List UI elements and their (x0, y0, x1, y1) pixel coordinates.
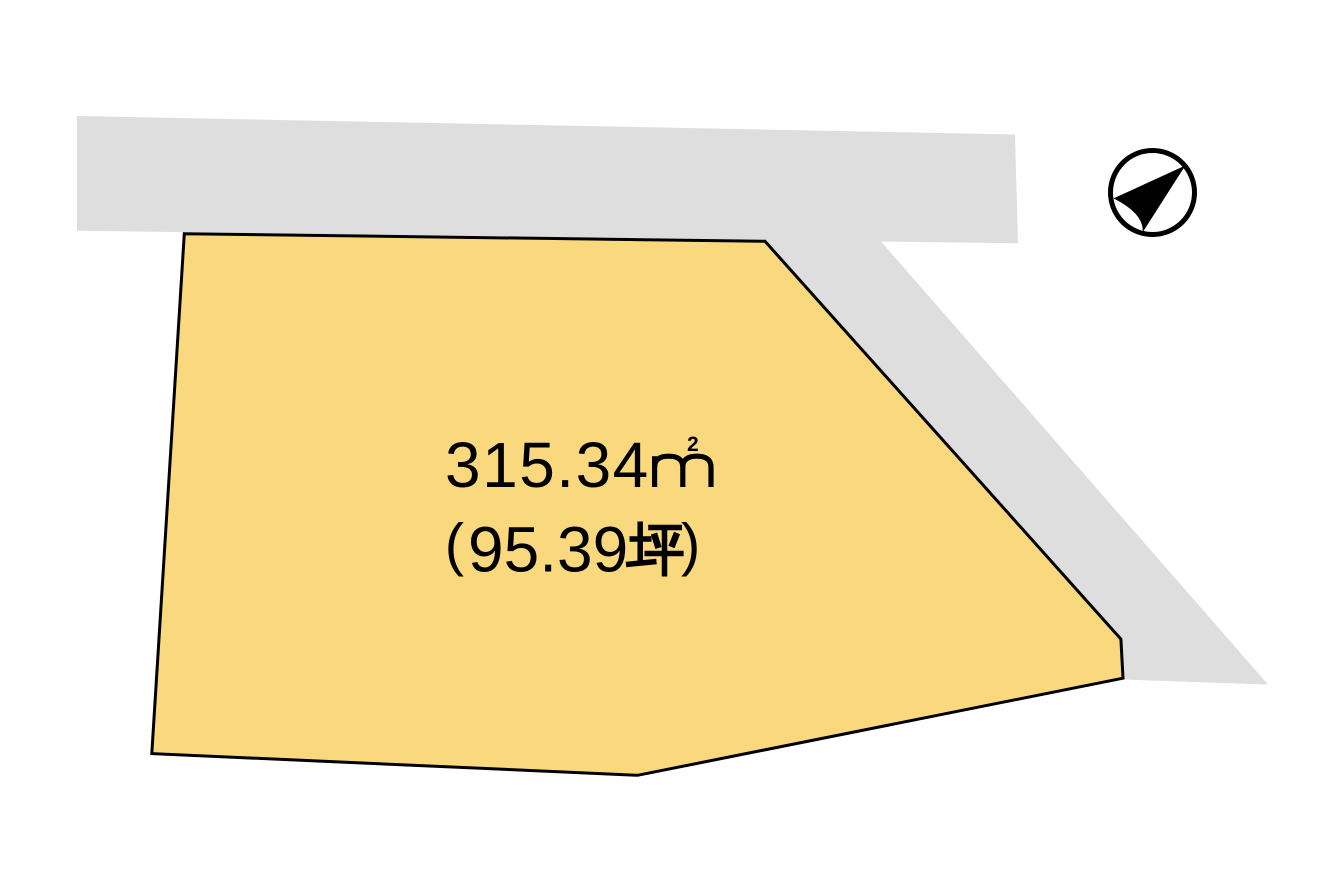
svg-text:): ) (681, 513, 700, 578)
svg-text:95.39: 95.39 (468, 514, 628, 586)
svg-text:(: ( (445, 513, 464, 578)
svg-text:2: 2 (687, 433, 699, 456)
svg-text:315.34: 315.34 (445, 429, 650, 501)
